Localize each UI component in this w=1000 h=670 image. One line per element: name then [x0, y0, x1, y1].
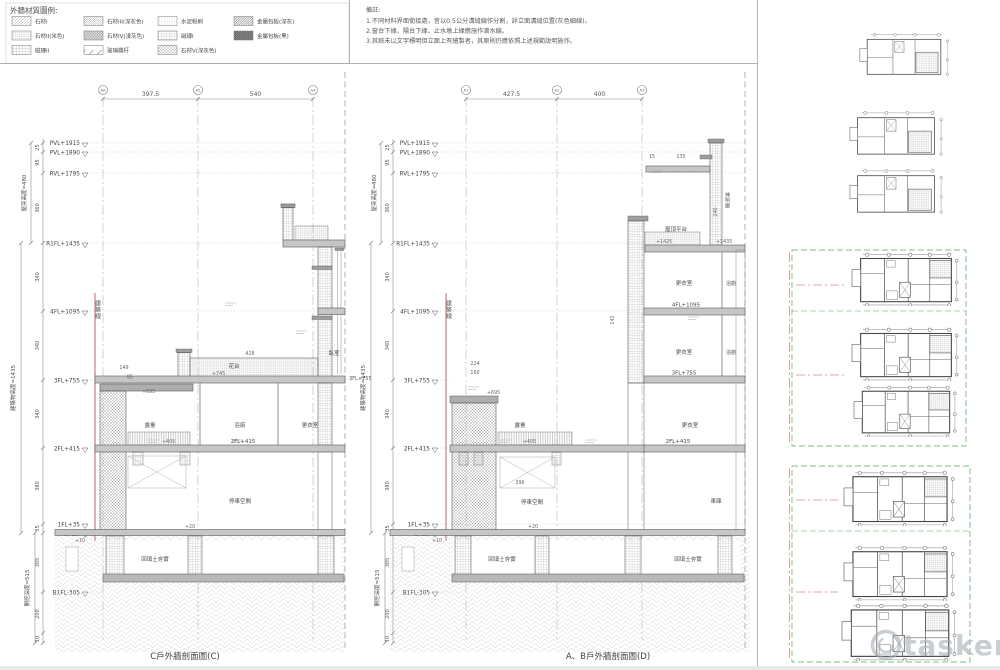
room-label-roof-platform: 屋頂平台	[665, 225, 688, 233]
section-d-structure	[390, 139, 745, 536]
dim-text: 396	[515, 480, 524, 486]
key-plan-thumbnail	[844, 471, 954, 526]
key-plan-thumbnail	[860, 33, 949, 75]
dim-text: 142	[610, 315, 616, 324]
legend-item: 金屬包板(深灰)	[234, 17, 294, 26]
legend-label: 金屬包板(黑)	[257, 32, 289, 40]
legend-label: 金屬包板(深灰)	[257, 18, 294, 26]
legend-item: 玻璃欄杆	[84, 46, 130, 55]
spot-elevation: +695	[142, 389, 155, 395]
section-d-drawing: A1 A2 A3 427.5 400 屋突高度=480 建築物高度=1435 開…	[359, 72, 750, 662]
grid-bubble-label: A3	[639, 88, 645, 93]
level-label: R1FL+1435	[396, 242, 430, 248]
dim-text: 135	[676, 154, 685, 160]
v-dim: 95	[385, 159, 391, 165]
room-label-shrine: 神明廳	[724, 191, 730, 209]
watermark-text: tasker	[903, 629, 1000, 662]
tiny-annotation-marks	[468, 170, 699, 443]
grid-bubble-label: A1	[463, 88, 469, 93]
legend-title: 外牆材質圖例:	[10, 5, 58, 15]
dim-text: 85	[127, 375, 133, 381]
legend-item: 金屬包板(黑)	[234, 31, 289, 40]
v-dim: 95	[35, 159, 41, 165]
v-dim: 340	[385, 409, 391, 419]
grid-dim: 540	[250, 91, 262, 98]
legend-label: 石材IV(淺灰色)	[107, 32, 144, 40]
level-label: RVL+1795	[399, 172, 430, 178]
note-line: 1.不同材料界面銜接處，皆以0.5公分溝縫線作分割，詳立面溝縫位置(灰色細線)。	[366, 17, 591, 25]
legend-item: 石材III(深灰色)	[84, 17, 144, 26]
room-label-parking: 停車空間	[229, 497, 252, 505]
grid-bubble-label: A4	[310, 88, 316, 93]
stone2-swatch	[12, 31, 31, 40]
legend-label: 石材II(米色)	[35, 32, 65, 40]
spot-elevation: +405	[523, 439, 536, 445]
v-dim: 340	[385, 341, 391, 351]
grid-dim: 397.5	[142, 91, 159, 98]
metal-black-swatch	[234, 31, 253, 40]
spot-elevation: +695	[487, 390, 500, 396]
dim-text: 149	[119, 365, 128, 371]
notes-title: 備註:	[366, 6, 380, 14]
level-label: 1FL+35	[408, 523, 431, 529]
internal-level-2f: 2FL+415	[231, 439, 256, 445]
stone1-swatch	[12, 17, 31, 26]
spot-elevation: +20	[528, 524, 538, 530]
grid-dim: 427.5	[503, 91, 520, 98]
height-label-excavation: 開挖深度=515	[23, 569, 31, 607]
metal-gray-swatch	[234, 17, 253, 26]
glass-rail-swatch	[84, 46, 103, 55]
building-line-label: 建築線	[445, 299, 452, 319]
spot-elevation: +1435	[716, 239, 732, 245]
v-dim: 25	[385, 144, 391, 150]
grid-bubble-label: A5	[195, 88, 201, 93]
grid-bubble-label: A2	[554, 88, 560, 93]
room-label-bath: 浴廁	[726, 349, 736, 356]
room-label-bath: 浴廁	[234, 421, 246, 429]
room-label-terrace: 露臺	[514, 421, 526, 429]
v-dim: 340	[35, 272, 41, 282]
legend-item: 磁磚I	[158, 31, 194, 40]
grid-bubble-label: A6	[100, 88, 106, 93]
v-dim: 340	[385, 272, 391, 282]
spot-elevation: +1425	[656, 239, 672, 245]
level-label: RVL+1795	[49, 172, 80, 178]
internal-level-4f: 4FL+1095	[672, 303, 701, 309]
legend-label: 石材I	[35, 18, 48, 26]
room-label-planter: 花台	[228, 362, 240, 370]
v-dim: 380	[385, 481, 391, 491]
legend-item: 石材IV(淺灰色)	[84, 31, 144, 40]
v-dim: 340	[35, 409, 41, 419]
legend-item: 磁磚II	[12, 46, 50, 55]
legend-item: 水泥粉刷	[158, 17, 204, 26]
spot-elevation: +745	[212, 371, 225, 377]
cement-swatch	[158, 17, 177, 26]
legend-label: 磁磚II	[35, 47, 50, 55]
room-label-garage: 車庫	[710, 497, 722, 505]
internal-level-3f: 3FL+755	[672, 371, 697, 377]
level-label: PVL+1915	[400, 141, 431, 147]
level-label: 3FL+755	[404, 379, 430, 385]
legend-label: 水泥粉刷	[181, 18, 204, 26]
dim-text: 15	[649, 154, 655, 160]
level-label: 1FL+35	[58, 523, 81, 529]
section-c-foundation	[55, 536, 345, 652]
v-dim: 360	[35, 203, 41, 213]
backfill-label: 回填土夯實	[141, 555, 169, 563]
v-dim: 35	[35, 525, 41, 531]
dim-text: 224	[470, 361, 479, 367]
level-label: 4FL+1095	[400, 310, 430, 316]
note-line: 2.窗台下緣、陽台下緣、止水墩上緣應施作滴水線。	[366, 27, 508, 35]
section-cut-marks	[796, 285, 844, 375]
level-label: PVL+1915	[50, 141, 81, 147]
section-c-structure	[55, 204, 345, 536]
key-plans-panel	[790, 33, 971, 662]
room-label-parking: 停車空間	[521, 498, 544, 506]
sheet-svg: 外牆材質圖例: 石材I 石材II(米色) 磁磚II 石材III(深灰色) 石材I…	[0, 0, 1000, 666]
tile1-swatch	[158, 31, 177, 40]
v-dim: 10	[35, 636, 41, 642]
backfill-label: 回填土夯實	[488, 555, 516, 563]
level-label: 2FL+415	[54, 447, 80, 453]
section-c-drawing: A6 A5 A4 397.5 540 屋突高度=480 建築物高度=1435 開…	[9, 72, 372, 662]
dim-text: 160	[470, 370, 479, 376]
note-line: 3.其餘未以文字標明但立面上有繪製者，其原則仍應依照上述規範說明施作。	[366, 37, 576, 45]
legend-item: 石材V(深灰色)	[158, 46, 217, 55]
room-label-bedroom: 臥室	[328, 349, 340, 357]
level-label: R1FL+1435	[46, 242, 80, 248]
section-c-caption: C戶外牆剖面圖(C)	[150, 651, 220, 662]
v-dim: 200	[35, 609, 41, 619]
material-legend: 外牆材質圖例: 石材I 石材II(米色) 磁磚II 石材III(深灰色) 石材I…	[10, 5, 294, 55]
spot-elevation: +10	[75, 538, 85, 544]
level-label: 4FL+1095	[50, 310, 80, 316]
notes-block: 備註: 1.不同材料界面銜接處，皆以0.5公分溝縫線作分割，詳立面溝縫位置(灰色…	[366, 6, 591, 45]
legend-item: 石材I	[12, 17, 48, 26]
v-dim: 360	[385, 203, 391, 213]
height-label-roof: 屋突高度=480	[370, 174, 378, 212]
internal-level-2f: 2FL+415	[666, 439, 691, 445]
dim-text: 240	[713, 207, 719, 216]
height-label-building: 建築物高度=1435	[359, 364, 367, 411]
key-plan-thumbnail	[854, 386, 956, 437]
grid-dim: 400	[594, 91, 606, 98]
spot-elevation: +20	[185, 524, 195, 530]
height-label-excavation: 開挖深度=515	[373, 569, 381, 607]
stone5-swatch	[158, 46, 177, 55]
key-plan-thumbnail	[850, 111, 942, 155]
spot-elevation: +405	[162, 439, 175, 445]
key-plan-thumbnail	[852, 253, 958, 306]
room-label-terrace: 露臺	[144, 421, 156, 429]
level-label: 3FL+755	[54, 379, 80, 385]
dim-text: 428	[245, 351, 254, 357]
legend-label: 石材III(深灰色)	[107, 18, 144, 26]
level-label: PVL+1890	[50, 151, 81, 157]
level-marks	[82, 143, 88, 597]
section-cut-marks	[796, 500, 838, 592]
stone3-swatch	[84, 17, 103, 26]
tile2-swatch	[12, 46, 31, 55]
v-dim: 340	[35, 341, 41, 351]
legend-item: 石材II(米色)	[12, 31, 65, 40]
level-label: 2FL+415	[404, 447, 430, 453]
level-label: PVL+1890	[400, 151, 431, 157]
height-label-roof: 屋突高度=480	[20, 174, 28, 212]
v-dim: 25	[35, 144, 41, 150]
building-line-label: 建築線	[94, 299, 101, 319]
legend-label: 玻璃欄杆	[107, 47, 130, 55]
height-label-building: 建築物高度=1435	[9, 364, 17, 411]
key-plan-thumbnail	[844, 546, 954, 601]
section-d-caption: A、B戶外牆剖面圖(D)	[566, 651, 650, 662]
level-marks	[432, 143, 438, 597]
legend-label: 石材V(深灰色)	[181, 47, 217, 55]
room-label-dressing: 更衣室	[676, 279, 693, 287]
legend-label: 磁磚I	[181, 32, 194, 40]
key-plan-thumbnail	[852, 328, 958, 381]
room-label-dressing: 更衣室	[682, 421, 699, 429]
room-label-dressing: 更衣室	[302, 421, 319, 429]
room-label-bath: 浴廁	[726, 280, 736, 287]
v-dim: 380	[35, 481, 41, 491]
section-d-foundation	[390, 536, 750, 652]
stone4-swatch	[84, 31, 103, 40]
backfill-label: 回填土夯實	[674, 555, 702, 563]
spot-elevation: +10	[432, 538, 442, 544]
room-label-dressing: 更衣室	[676, 348, 693, 356]
drawing-sheet: 外牆材質圖例: 石材I 石材II(米色) 磁磚II 石材III(深灰色) 石材I…	[0, 0, 1000, 666]
v-dim: 305	[35, 558, 41, 568]
key-plan-thumbnail	[850, 169, 942, 213]
